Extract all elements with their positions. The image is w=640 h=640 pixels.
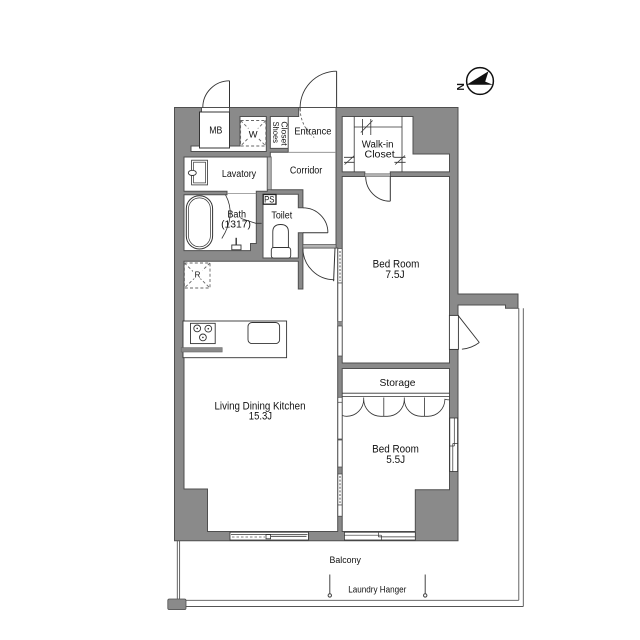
svg-text:MB: MB: [209, 125, 222, 136]
svg-text:W: W: [249, 130, 259, 141]
svg-text:N: N: [455, 83, 467, 91]
svg-text:15.3J: 15.3J: [249, 410, 272, 422]
svg-text:PS: PS: [264, 195, 274, 205]
svg-text:5.5J: 5.5J: [386, 454, 405, 466]
svg-text:Storage: Storage: [380, 377, 416, 389]
svg-text:Laundry Hanger: Laundry Hanger: [348, 584, 406, 594]
svg-text:Corridor: Corridor: [290, 165, 323, 176]
svg-text:Entrance: Entrance: [294, 127, 332, 138]
svg-text:Closet: Closet: [280, 121, 289, 146]
svg-text:Balcony: Balcony: [330, 555, 361, 566]
svg-text:Lavatory: Lavatory: [222, 169, 256, 180]
svg-text:Shoes: Shoes: [271, 121, 280, 143]
svg-text:Toilet: Toilet: [271, 211, 292, 222]
svg-text:7.5J: 7.5J: [385, 269, 404, 281]
svg-text:R: R: [195, 270, 201, 279]
svg-text:Closet: Closet: [365, 150, 395, 161]
svg-text:(1317): (1317): [221, 220, 251, 231]
